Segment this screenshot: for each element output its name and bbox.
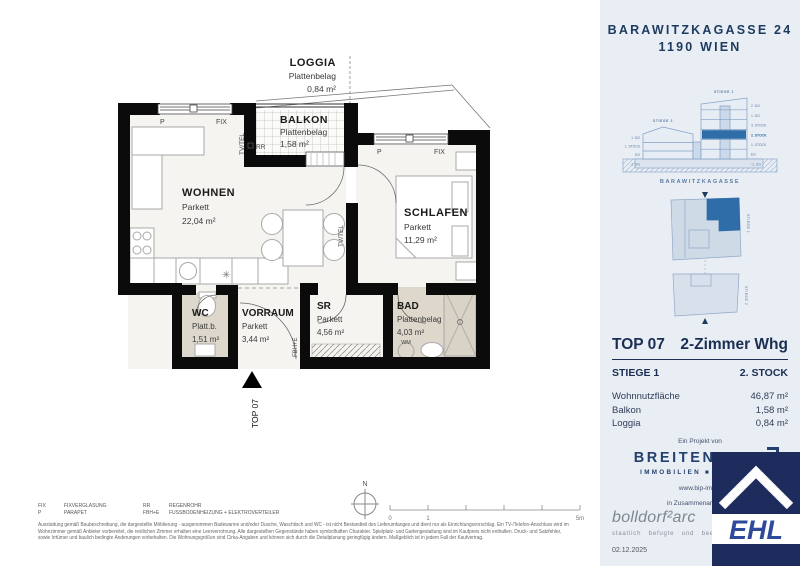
legend-text: REGENROHR bbox=[169, 503, 202, 510]
svg-text:1,58 m²: 1,58 m² bbox=[280, 139, 309, 149]
svg-text:BALKON: BALKON bbox=[280, 114, 328, 126]
room-label-loggia: LOGGIA Plattenbelag 0,84 m² bbox=[289, 57, 337, 94]
svg-text:1,51 m²: 1,51 m² bbox=[192, 335, 219, 344]
scale-5m: 5m bbox=[576, 516, 584, 522]
svg-text:1. DG: 1. DG bbox=[751, 114, 760, 118]
divider bbox=[612, 359, 788, 360]
svg-text:Parkett: Parkett bbox=[404, 222, 432, 232]
svg-text:EG: EG bbox=[751, 153, 756, 157]
legend-abbr: RR bbox=[143, 503, 169, 510]
legend-text: FUSSBODENHEIZUNG + ELEKTROVERTEILER bbox=[169, 510, 279, 517]
unit-info: TOP 07 2-Zimmer Whg STIEGE 1 2. STOCK Wo… bbox=[612, 336, 788, 431]
svg-text:2. DG: 2. DG bbox=[751, 104, 760, 108]
svg-text:22,04 m²: 22,04 m² bbox=[182, 216, 216, 226]
disclaimer: Ausstattung gemäß Baubeschreibung, die d… bbox=[38, 522, 570, 542]
plan-date: 02.12.2025 bbox=[612, 547, 647, 554]
area-label: Loggia bbox=[612, 417, 641, 431]
area-value: 0,84 m² bbox=[756, 417, 788, 431]
area-value: 1,58 m² bbox=[756, 404, 788, 418]
sidebar: BARAWITZKAGASSE 24 1190 WIEN bbox=[600, 0, 800, 566]
address-line1: BARAWITZKAGASSE 24 bbox=[600, 22, 800, 39]
section-buildings bbox=[643, 98, 747, 159]
legend-text: FIXVERGLASUNG bbox=[64, 503, 107, 510]
area-label: Balkon bbox=[612, 404, 641, 418]
legend-right: RRREGENROHR FBH+EFUSSBODENHEIZUNG + ELEK… bbox=[143, 503, 279, 517]
area-row: Balkon 1,58 m² bbox=[612, 404, 788, 418]
sr-shelf-hatch bbox=[312, 344, 380, 359]
svg-text:1. STOCK: 1. STOCK bbox=[625, 145, 641, 149]
section-stiege1-label: STIEGE 1 bbox=[714, 90, 734, 94]
entrance-arrow bbox=[242, 371, 262, 388]
site-north-marker bbox=[702, 192, 708, 198]
window-post bbox=[190, 105, 197, 112]
svg-text:WOHNEN: WOHNEN bbox=[182, 187, 235, 199]
svg-text:EG: EG bbox=[635, 153, 640, 157]
area-row: Loggia 0,84 m² bbox=[612, 417, 788, 431]
balkon-door-threshold bbox=[306, 152, 344, 166]
svg-text:4,03 m²: 4,03 m² bbox=[397, 328, 424, 337]
floorplan-page: LOGGIA Plattenbelag 0,84 m² BALKON Platt… bbox=[0, 0, 800, 566]
svg-text:LOGGIA: LOGGIA bbox=[290, 57, 336, 69]
legend-abbr: P bbox=[38, 510, 64, 517]
floor-heating-label: FBH+E bbox=[293, 337, 299, 357]
section-stiege2-label: STIEGE 2 bbox=[653, 119, 673, 123]
svg-text:11,29 m²: 11,29 m² bbox=[404, 235, 437, 245]
washing-machine-label: WM bbox=[401, 340, 411, 346]
svg-text:VORRAUM: VORRAUM bbox=[242, 308, 294, 319]
window-post bbox=[406, 135, 413, 142]
unit-type: 2-Zimmer Whg bbox=[680, 336, 788, 354]
north-arrow-icon bbox=[351, 489, 379, 519]
svg-text:4,56 m²: 4,56 m² bbox=[317, 328, 344, 337]
ehl-wordmark: EHL bbox=[729, 515, 783, 545]
fix-glazing-label: FIX bbox=[216, 119, 227, 126]
svg-text:0,84 m²: 0,84 m² bbox=[307, 84, 336, 94]
svg-text:SR: SR bbox=[317, 301, 332, 312]
scale-bar bbox=[390, 505, 580, 510]
svg-text:-1. UG: -1. UG bbox=[630, 163, 640, 167]
top-07-marker-label: TOP 07 bbox=[250, 399, 260, 428]
fix-glazing-label: FIX bbox=[434, 149, 445, 156]
bath-sink bbox=[421, 343, 443, 358]
svg-text:Parkett: Parkett bbox=[317, 315, 343, 324]
section-right-floor-labels: 2. DG 1. DG 3. STOCK 2. STOCK 1. STOCK E… bbox=[751, 104, 767, 167]
fixture-symbol: ✳ bbox=[222, 270, 230, 281]
address-line2: 1190 WIEN bbox=[600, 39, 800, 56]
svg-text:3. STOCK: 3. STOCK bbox=[751, 124, 767, 128]
area-value: 46,87 m² bbox=[751, 390, 789, 404]
disclaimer-line: Wohnzimmer gemäß Anbieter vorbereitet, d… bbox=[38, 529, 570, 536]
svg-text:2. STOCK: 2. STOCK bbox=[751, 134, 767, 138]
rainpipe-label: RR bbox=[256, 144, 266, 151]
svg-text:Plattenbelag: Plattenbelag bbox=[397, 315, 441, 324]
bolldorf-subline: staatlich befugte und bee bbox=[612, 531, 714, 537]
street-label: BARAWITZKAGASSE bbox=[600, 179, 800, 185]
parapet-label: P bbox=[160, 119, 165, 126]
unit-floor: 2. STOCK bbox=[740, 367, 788, 379]
tv-tel-label: TV/TEL bbox=[338, 225, 345, 247]
svg-text:BAD: BAD bbox=[397, 301, 419, 312]
bolldorf-logo: bolldorf²arc bbox=[612, 509, 696, 527]
svg-text:1. STOCK: 1. STOCK bbox=[751, 143, 767, 147]
ehl-logo: EHL bbox=[712, 452, 800, 566]
disclaimer-line: Ausstattung gemäß Baubeschreibung, die d… bbox=[38, 522, 570, 529]
site-south-marker bbox=[702, 318, 708, 324]
site-building-stiege2 bbox=[673, 274, 739, 316]
svg-text:Parkett: Parkett bbox=[182, 202, 210, 212]
svg-text:Plattenbelag: Plattenbelag bbox=[280, 127, 328, 137]
tv-tel-label: TV/TEL bbox=[239, 133, 246, 155]
unit-top-number: TOP 07 bbox=[612, 336, 665, 354]
building-section-diagram: STIEGE 1 STIEGE 2 1. DG 1. STOCK EG -1. … bbox=[605, 62, 795, 174]
site-plan-diagram: STIEGE 1 STIEGE 2 bbox=[615, 190, 785, 326]
svg-text:Parkett: Parkett bbox=[242, 322, 268, 331]
svg-text:1. DG: 1. DG bbox=[631, 136, 640, 140]
svg-text:Plattenbelag: Plattenbelag bbox=[289, 71, 337, 81]
legend-left: FIXFIXVERGLASUNG PPARAPET bbox=[38, 503, 107, 517]
site-stiege2-label: STIEGE 2 bbox=[744, 286, 748, 305]
legend-abbr: FIX bbox=[38, 503, 64, 510]
legend-abbr: FBH+E bbox=[143, 510, 169, 517]
legend-text: PARAPET bbox=[64, 510, 87, 517]
svg-text:-1. UG: -1. UG bbox=[751, 163, 761, 167]
north-label: N bbox=[362, 481, 367, 488]
parapet-label: P bbox=[377, 149, 382, 156]
area-label: Wohnnutzfläche bbox=[612, 390, 680, 404]
svg-text:WC: WC bbox=[192, 308, 209, 319]
north-and-scale: N 0 1 5m bbox=[335, 476, 595, 524]
disclaimer-line: sowie Irrtümer und baulich bedingte Ände… bbox=[38, 535, 570, 542]
svg-text:3,44 m²: 3,44 m² bbox=[242, 335, 269, 344]
unit-stiege: STIEGE 1 bbox=[612, 367, 659, 379]
svg-text:SCHLAFEN: SCHLAFEN bbox=[404, 207, 468, 219]
area-row: Wohnnutzfläche 46,87 m² bbox=[612, 390, 788, 404]
site-stiege1-label: STIEGE 1 bbox=[746, 214, 750, 233]
highlighted-floor-bar bbox=[702, 130, 746, 139]
floor-plan-drawing: LOGGIA Plattenbelag 0,84 m² BALKON Platt… bbox=[0, 0, 600, 470]
svg-text:Platt.b.: Platt.b. bbox=[192, 322, 217, 331]
address-title: BARAWITZKAGASSE 24 1190 WIEN bbox=[600, 22, 800, 56]
project-by-label: Ein Projekt von bbox=[600, 438, 800, 445]
